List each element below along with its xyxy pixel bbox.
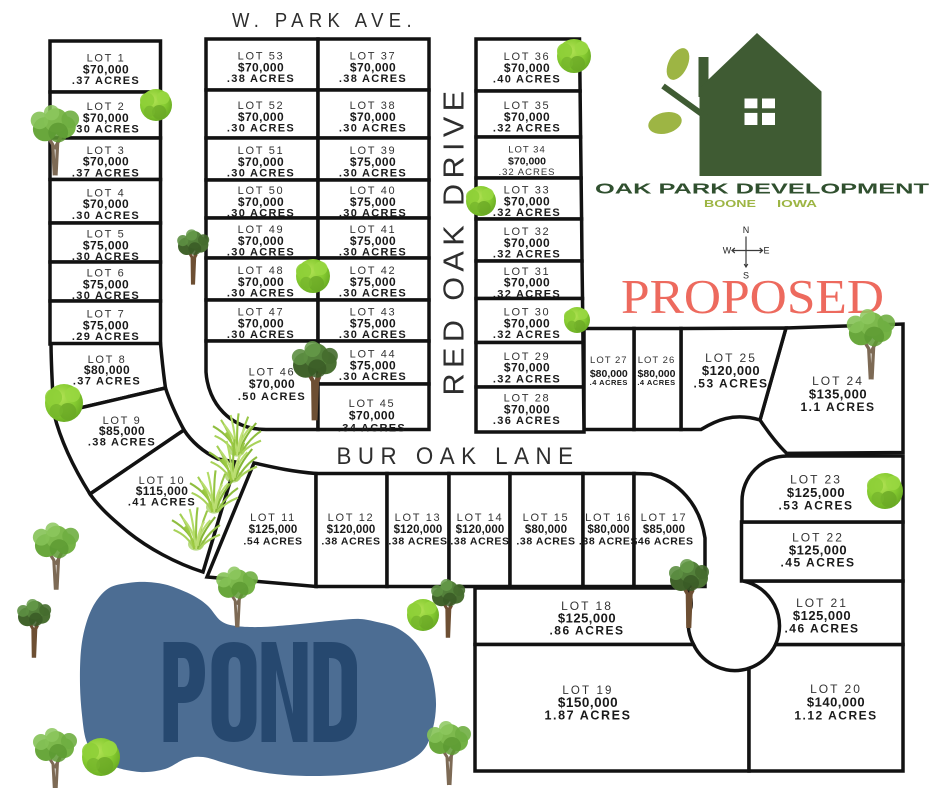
svg-text:LOT 13: LOT 13 — [395, 512, 442, 524]
svg-text:E: E — [763, 246, 769, 256]
svg-text:LOT 34: LOT 34 — [508, 145, 546, 156]
svg-text:LOT 15: LOT 15 — [523, 512, 570, 524]
svg-text:BUR OAK LANE: BUR OAK LANE — [337, 443, 580, 470]
svg-text:.38 ACRES: .38 ACRES — [516, 536, 575, 548]
svg-text:.36 ACRES: .36 ACRES — [493, 415, 561, 427]
svg-text:.50 ACRES: .50 ACRES — [238, 391, 306, 403]
svg-text:LOT 12: LOT 12 — [328, 512, 375, 524]
svg-text:$120,000: $120,000 — [394, 524, 443, 536]
svg-text:$80,000: $80,000 — [587, 524, 629, 536]
svg-text:.30 ACRES: .30 ACRES — [339, 371, 407, 383]
svg-text:$70,000: $70,000 — [249, 377, 295, 391]
svg-text:LOT 16: LOT 16 — [585, 512, 632, 524]
svg-text:.30 ACRES: .30 ACRES — [227, 208, 295, 220]
svg-text:.37 ACRES: .37 ACRES — [72, 75, 140, 87]
svg-text:.46 ACRES: .46 ACRES — [634, 536, 693, 548]
svg-text:.30 ACRES: .30 ACRES — [72, 210, 140, 222]
svg-text:.38 ACRES: .38 ACRES — [579, 536, 638, 548]
svg-text:.34 ACRES: .34 ACRES — [338, 423, 406, 435]
svg-text:LOT 27: LOT 27 — [590, 355, 628, 366]
svg-text:.29 ACRES: .29 ACRES — [72, 331, 140, 343]
svg-text:.53 ACRES: .53 ACRES — [693, 377, 768, 391]
svg-text:$120,000: $120,000 — [327, 524, 376, 536]
svg-text:.37 ACRES: .37 ACRES — [72, 167, 140, 179]
svg-text:1.1 ACRES: 1.1 ACRES — [800, 400, 875, 414]
svg-text:LOT 14: LOT 14 — [457, 512, 504, 524]
svg-text:.37 ACRES: .37 ACRES — [73, 376, 141, 388]
svg-text:.4 ACRES: .4 ACRES — [637, 378, 675, 387]
svg-text:.86 ACRES: .86 ACRES — [549, 624, 624, 638]
svg-text:.38 ACRES: .38 ACRES — [339, 73, 407, 85]
svg-text:.30 ACRES: .30 ACRES — [72, 124, 140, 136]
svg-text:1.87 ACRES: 1.87 ACRES — [544, 709, 631, 723]
svg-text:$70,000: $70,000 — [508, 155, 546, 167]
svg-text:.32 ACRES: .32 ACRES — [493, 123, 561, 135]
svg-text:.30 ACRES: .30 ACRES — [227, 247, 295, 259]
svg-text:LOT 11: LOT 11 — [250, 512, 296, 524]
svg-text:.30 ACRES: .30 ACRES — [227, 288, 295, 300]
svg-text:$125,000: $125,000 — [249, 524, 298, 536]
svg-text:.32 ACRES: .32 ACRES — [493, 329, 561, 341]
svg-text:.45 ACRES: .45 ACRES — [780, 556, 855, 570]
svg-text:$85,000: $85,000 — [643, 524, 685, 536]
svg-text:BOONE: BOONE — [704, 198, 756, 210]
svg-text:.32 ACRES: .32 ACRES — [493, 373, 561, 385]
svg-text:.38 ACRES: .38 ACRES — [227, 73, 295, 85]
svg-text:.54 ACRES: .54 ACRES — [243, 536, 302, 548]
svg-text:.30 ACRES: .30 ACRES — [227, 168, 295, 180]
svg-text:$70,000: $70,000 — [349, 409, 395, 423]
svg-text:.38 ACRES: .38 ACRES — [450, 536, 509, 548]
svg-text:.41 ACRES: .41 ACRES — [128, 497, 196, 509]
svg-text:1.12 ACRES: 1.12 ACRES — [794, 709, 877, 723]
svg-text:$120,000: $120,000 — [456, 524, 505, 536]
svg-text:.30 ACRES: .30 ACRES — [339, 329, 407, 341]
svg-text:N: N — [743, 225, 750, 235]
svg-text:W. PARK AVE.: W. PARK AVE. — [232, 9, 417, 32]
svg-text:.32 ACRES: .32 ACRES — [493, 288, 561, 300]
svg-text:$140,000: $140,000 — [807, 695, 865, 710]
svg-text:OAK PARK DEVELOPMENT: OAK PARK DEVELOPMENT — [595, 181, 929, 198]
svg-text:.32 ACRES: .32 ACRES — [498, 167, 555, 178]
svg-text:.30 ACRES: .30 ACRES — [339, 168, 407, 180]
svg-text:.30 ACRES: .30 ACRES — [339, 247, 407, 259]
svg-text:.30 ACRES: .30 ACRES — [227, 123, 295, 135]
svg-text:.30 ACRES: .30 ACRES — [227, 329, 295, 341]
svg-text:.30 ACRES: .30 ACRES — [339, 208, 407, 220]
svg-text:.30 ACRES: .30 ACRES — [72, 251, 140, 263]
svg-text:RED OAK DRIVE: RED OAK DRIVE — [439, 86, 471, 396]
svg-text:.53 ACRES: .53 ACRES — [778, 499, 853, 513]
svg-text:.32 ACRES: .32 ACRES — [493, 207, 561, 219]
svg-text:.4 ACRES: .4 ACRES — [590, 378, 628, 387]
svg-text:.30 ACRES: .30 ACRES — [339, 288, 407, 300]
svg-text:.40 ACRES: .40 ACRES — [493, 74, 561, 86]
svg-text:LOT 26: LOT 26 — [638, 355, 676, 366]
svg-text:LOT 17: LOT 17 — [641, 512, 688, 524]
svg-text:.46 ACRES: .46 ACRES — [784, 622, 859, 636]
svg-text:.38 ACRES: .38 ACRES — [88, 437, 156, 449]
svg-text:$80,000: $80,000 — [525, 524, 567, 536]
svg-text:.30 ACRES: .30 ACRES — [339, 123, 407, 135]
svg-text:W: W — [723, 246, 732, 256]
svg-text:IOWA: IOWA — [777, 198, 818, 210]
svg-text:.32 ACRES: .32 ACRES — [493, 249, 561, 261]
svg-text:.30 ACRES: .30 ACRES — [72, 290, 140, 302]
svg-text:PROPOSED: PROPOSED — [621, 269, 884, 324]
svg-text:.38 ACRES: .38 ACRES — [388, 536, 447, 548]
svg-text:.38 ACRES: .38 ACRES — [321, 536, 380, 548]
